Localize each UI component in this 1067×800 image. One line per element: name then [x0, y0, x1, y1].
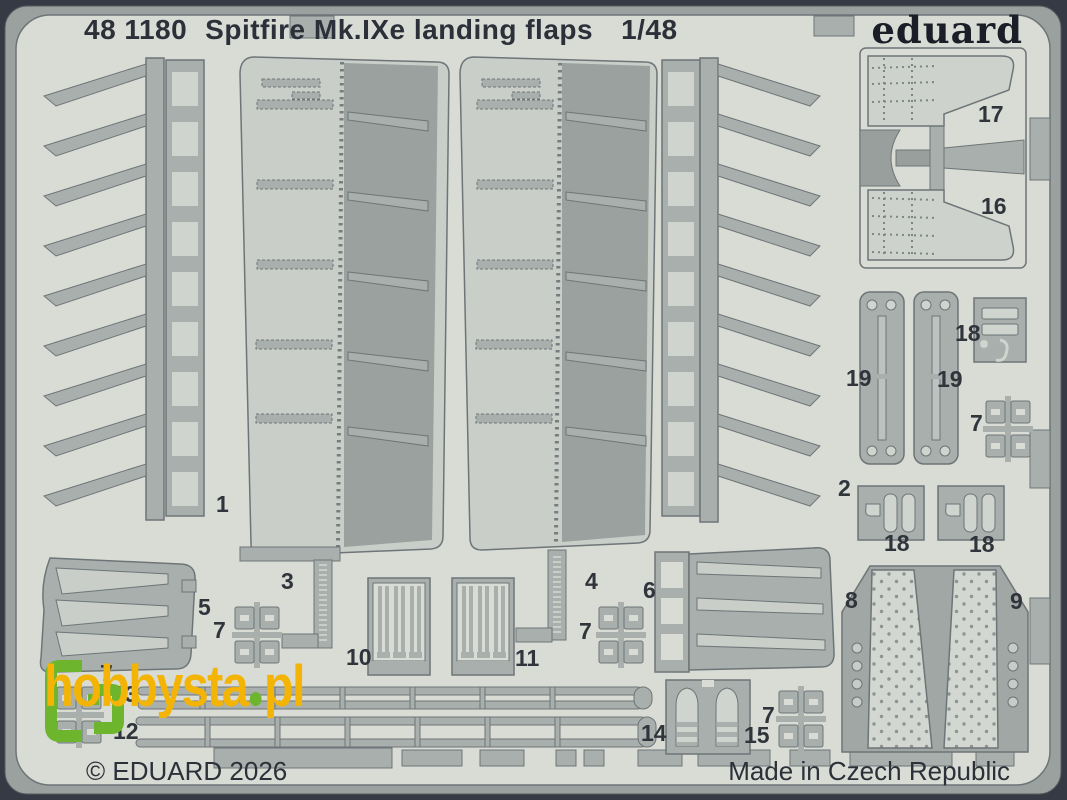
part-label-1: 1	[216, 493, 229, 516]
part-label-7: 7	[579, 620, 592, 643]
eduard-logo: eduard	[871, 8, 1023, 52]
watermark-dot	[250, 692, 262, 706]
fret-title: 48 1180 Spitfire Mk.IXe landing flaps 1/…	[84, 14, 678, 46]
part-label-7: 7	[213, 619, 226, 642]
part-7-cluster	[596, 602, 646, 668]
part-label-15: 15	[744, 724, 770, 747]
part-label-7: 7	[970, 412, 983, 435]
made-in-text: Made in Czech Republic	[728, 756, 1010, 787]
part-label-14: 14	[641, 722, 667, 745]
part-label-11: 11	[515, 647, 539, 670]
part-label-16: 16	[981, 195, 1007, 218]
part-label-18: 18	[884, 532, 910, 555]
part-label-4: 4	[585, 570, 598, 593]
part-label-2: 2	[838, 477, 851, 500]
product-name: Spitfire Mk.IXe landing flaps	[205, 14, 593, 46]
part-16-17-wing-fairings	[860, 48, 1026, 268]
part-7-cluster	[983, 396, 1033, 462]
watermark-text: hobbysta pl	[44, 658, 304, 716]
copyright-text: © EDUARD 2026	[86, 756, 287, 787]
part-10-comb	[368, 578, 430, 675]
part-label-3: 3	[281, 570, 294, 593]
part-label-18: 18	[955, 322, 981, 345]
part-label-8: 8	[845, 589, 858, 612]
part-label-17: 17	[978, 103, 1004, 126]
part-label-6: 6	[643, 579, 656, 602]
part-18-bracket	[974, 298, 1026, 362]
part-6-flap-section	[655, 548, 834, 672]
part-label-9: 9	[1010, 590, 1023, 613]
pe-fret-photo: 48 1180 Spitfire Mk.IXe landing flaps 1/…	[0, 0, 1067, 800]
part-label-18: 18	[969, 533, 995, 556]
watermark: hobbysta pl	[44, 658, 353, 716]
part-label-5: 5	[198, 596, 211, 619]
part-label-19: 19	[937, 368, 963, 391]
watermark-tld: pl	[264, 658, 304, 716]
part-11-comb	[452, 578, 514, 675]
catalog-number: 48 1180	[84, 14, 187, 46]
scale: 1/48	[621, 14, 678, 46]
watermark-site-name: hobbysta	[44, 658, 247, 716]
part-14-15-fairings	[666, 680, 750, 754]
part-7-cluster	[776, 686, 826, 752]
part-label-19: 19	[846, 367, 872, 390]
part-8-9-flap-skins	[842, 566, 1028, 752]
